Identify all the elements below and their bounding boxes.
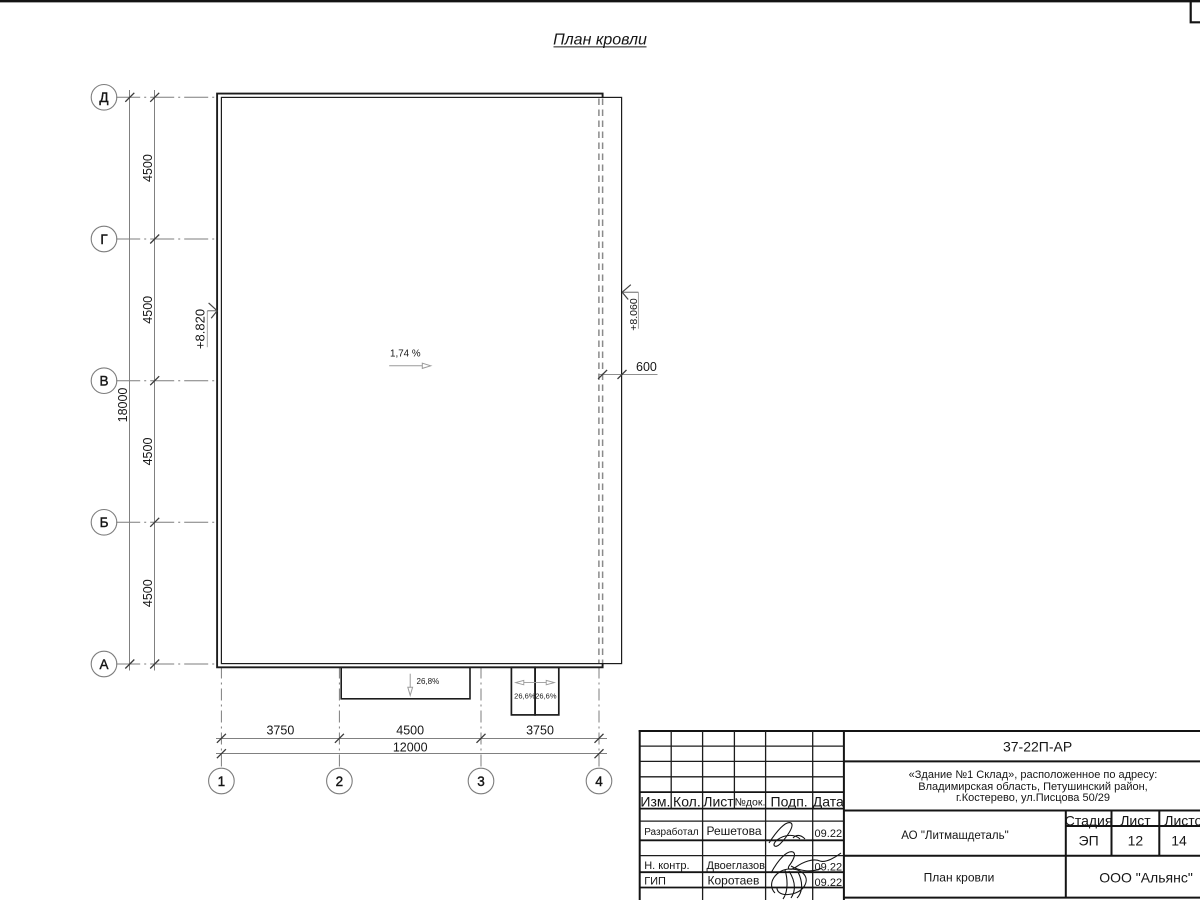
svg-text:1: 1 [218,774,226,789]
svg-text:Подп.: Подп. [771,793,808,809]
svg-text:Двоеглазов: Двоеглазов [707,860,766,872]
svg-text:г.Костерево, ул.Писцова 50/29: г.Костерево, ул.Писцова 50/29 [956,792,1110,804]
svg-text:Стадия: Стадия [1065,812,1113,828]
svg-text:Кол.: Кол. [673,793,701,809]
svg-text:26,6%: 26,6% [535,692,557,701]
svg-text:ГИП: ГИП [644,876,666,888]
svg-text:4500: 4500 [141,579,155,607]
svg-text:4500: 4500 [396,724,424,738]
svg-text:26,8%: 26,8% [417,677,440,686]
svg-text:3750: 3750 [266,724,294,738]
svg-text:ЭП: ЭП [1079,832,1099,848]
svg-text:В: В [99,374,108,389]
svg-text:Листов: Листов [1164,812,1200,828]
svg-text:А: А [99,657,108,672]
svg-text:+8.820: +8.820 [192,309,207,349]
svg-text:Решетова: Решетова [707,824,762,838]
svg-text:АО "Литмашдеталь": АО "Литмашдеталь" [901,830,1008,842]
svg-text:09.22: 09.22 [815,861,843,873]
svg-text:Лист: Лист [1120,812,1151,828]
svg-text:26,6%: 26,6% [514,692,536,701]
svg-text:12000: 12000 [393,741,428,755]
svg-text:3750: 3750 [526,724,554,738]
svg-text:18000: 18000 [116,388,130,423]
svg-text:Д: Д [99,90,108,105]
svg-text:3: 3 [477,774,485,789]
svg-text:600: 600 [636,360,657,374]
svg-text:4500: 4500 [141,154,155,182]
svg-text:4: 4 [595,774,603,789]
svg-text:План кровли: План кровли [553,31,647,48]
svg-text:1,74 %: 1,74 % [390,349,421,360]
svg-text:Г: Г [100,232,108,247]
svg-text:37-22П-АР: 37-22П-АР [1003,739,1072,755]
svg-text:Дата: Дата [813,793,844,809]
svg-text:4500: 4500 [141,438,155,466]
svg-text:Коротаев: Коротаев [708,873,760,887]
svg-text:Разработал: Разработал [644,826,699,838]
svg-text:Б: Б [100,515,109,530]
svg-text:Лист: Лист [703,793,734,809]
svg-text:№док.: №док. [735,797,766,809]
svg-text:Н. контр.: Н. контр. [644,860,689,872]
svg-text:12: 12 [1128,832,1144,848]
svg-text:2: 2 [336,774,344,789]
svg-text:ООО "Альянс": ООО "Альянс" [1099,869,1193,885]
svg-text:«Здание №1 Склад», расположенн: «Здание №1 Склад», расположенное по адре… [909,769,1158,781]
svg-text:09.22: 09.22 [815,828,843,840]
svg-text:Изм.: Изм. [640,793,670,809]
svg-text:4500: 4500 [141,296,155,324]
svg-text:14: 14 [1171,832,1187,848]
svg-text:План кровли: План кровли [924,871,995,885]
svg-text:09.22: 09.22 [815,877,843,889]
